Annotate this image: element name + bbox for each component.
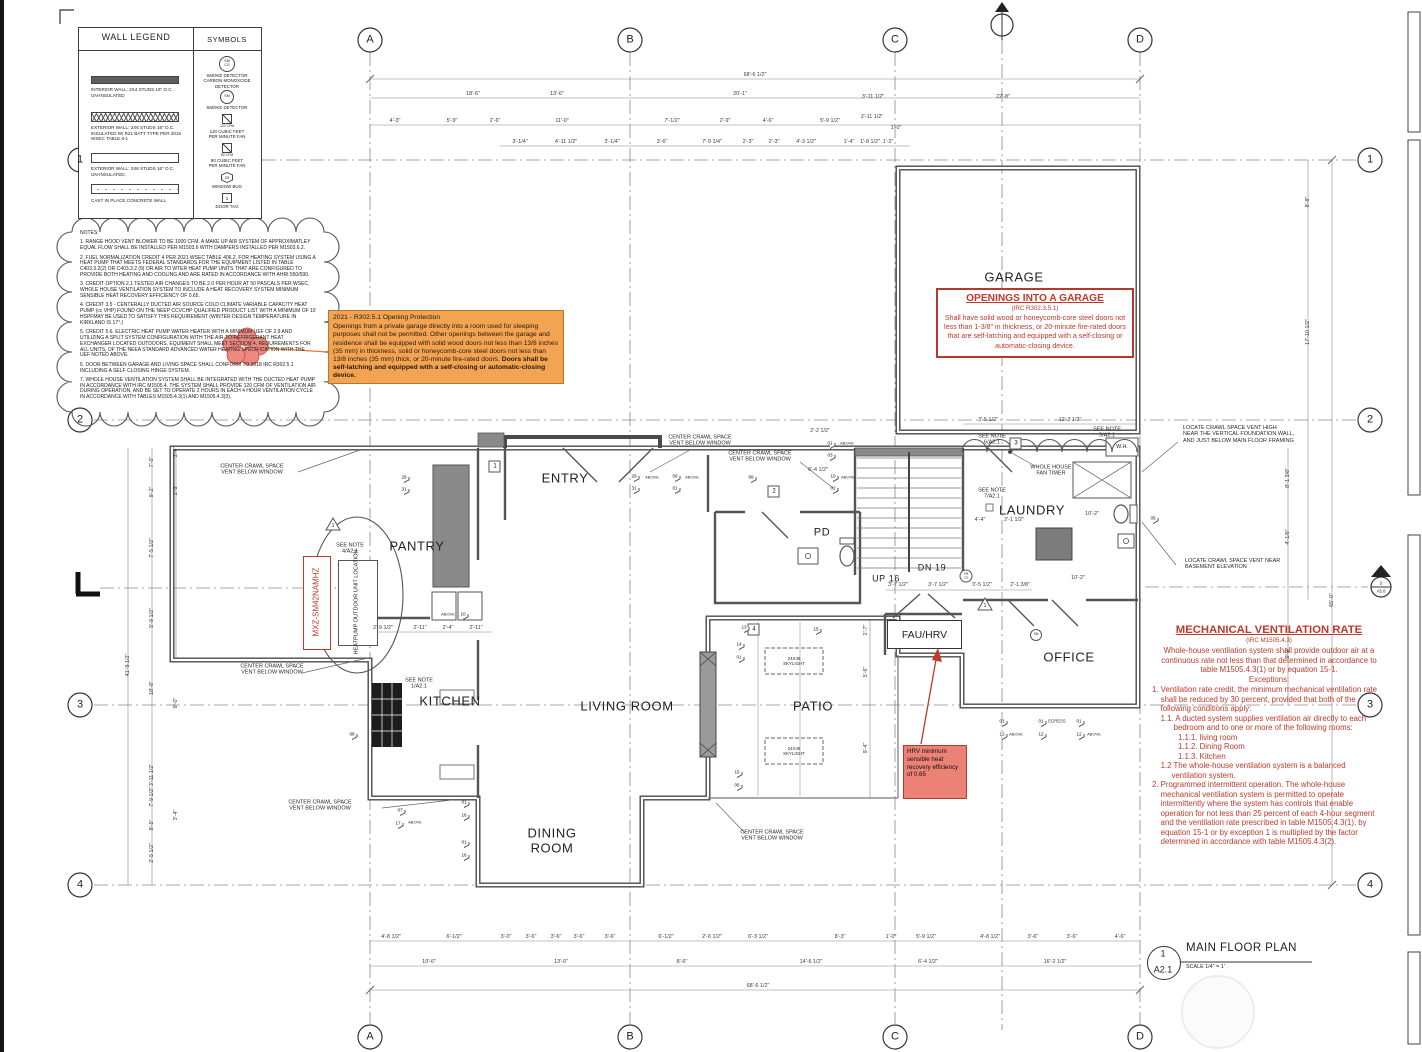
heatpump-unit-label: HEATPUMP OUTDOOR UNIT LOCATION (354, 550, 361, 655)
room-label-office: OFFICE (1043, 649, 1094, 664)
sheet-number: A2.1 (1154, 965, 1173, 976)
window-bug: 17 (395, 820, 400, 825)
note-4: 4. CREDIT 3.5 - CENTERALLY DUCTED AIR SO… (80, 303, 316, 326)
crawl-vent-note-4: CENTER CRAWL SPACE VENT BELOW WINDOW (240, 664, 303, 677)
door-tag-4: 4 (752, 626, 755, 633)
dim: 2'-2 1/2" (810, 428, 830, 434)
dim: 68'-6 1/2" (747, 983, 770, 989)
dim: 3'-11 1/2" (149, 764, 155, 786)
window-bug: 89 (748, 474, 753, 479)
garage-openings-note: OPENINGS INTO A GARAGE (IRC R302.3.5.1) … (936, 288, 1134, 358)
red-markups (223, 328, 942, 744)
window-bug-item: 23 WINDOW BUG (195, 172, 259, 189)
see-note-6: SEE NOTE 6/A2.1 (978, 434, 1006, 447)
skylight-note-2: 24X48 SKYLIGHT (783, 746, 805, 756)
room-label-fau-hrv: FAU/HRV (887, 620, 962, 649)
dim: 11'-0" (555, 118, 568, 124)
grid-row-1-right: 1 (1367, 154, 1373, 167)
section-cut-mark (76, 572, 100, 594)
dim: 9'-2" (149, 487, 155, 498)
dim: 3'-7 1/2" (888, 582, 908, 588)
dim: 1'-8 1/2" (860, 139, 880, 145)
window-bug: 29 (401, 474, 406, 479)
dim: 8'-3" (835, 934, 846, 940)
dim: 3'-6" (657, 139, 668, 145)
above-label-7: ABOVE (1009, 733, 1023, 738)
grid-col-d-bottom: D (1136, 1031, 1144, 1044)
window-bug: 06 (734, 782, 739, 787)
window-bug: 02 (830, 485, 835, 490)
hrv-efficiency-note: HRV minimum sensible heat recovery effic… (903, 745, 967, 799)
dim: 2'-1 3/8" (1010, 582, 1030, 588)
dim: 16'-2 1/2" (1044, 959, 1067, 965)
dim: 41'-9 1/2" (125, 654, 131, 677)
dim: 2'-6 1/2" (702, 934, 722, 940)
interior-walls (370, 448, 1138, 798)
above-label-8: ABOVE (1087, 733, 1101, 738)
smoke-detector-mark: SM (1034, 633, 1039, 637)
dim: 6'-4 1/2" (808, 467, 828, 473)
dim: 6'-4 1/2" (918, 959, 938, 965)
grid-row-1-left: 1 (77, 154, 83, 167)
window-bug: 31 (631, 485, 636, 490)
window-bug: 05 (1150, 515, 1155, 520)
grid-col-a-bottom: A (366, 1031, 373, 1044)
north-marker-icon (991, 2, 1013, 40)
above-label-2: ABOVE (685, 476, 699, 481)
dim: 3'-6" (1028, 934, 1039, 940)
door-tag-3: 3 (1014, 440, 1017, 447)
dim: 1'-2" (883, 139, 894, 145)
wall-legend-panel: WALL LEGEND SYMBOLS INTERIOR WALL: 2X4 S… (78, 27, 262, 219)
window-bug: 01 (827, 440, 832, 445)
window-bug: 14 (736, 641, 741, 646)
fan-120-icon (222, 114, 232, 124)
dim: 2'-1 1/2" (1004, 517, 1024, 523)
dim: 2'-11 1/2" (861, 114, 883, 120)
symbols-title: SYMBOLS (193, 35, 261, 44)
wall-legend-title: WALL LEGEND (79, 32, 193, 42)
dim: 9'-0" (173, 698, 179, 709)
window-bug: 12 (999, 731, 1004, 736)
smoke-detector-item: SM SMOKE DETECTOR (195, 90, 259, 110)
dim: 3'-0" (501, 934, 512, 940)
crawl-vent-basement-note: LOCATE CRAWL SPACE VENT NEAR BASEMENT EL… (1185, 558, 1280, 571)
window-bug: 01 (999, 718, 1004, 723)
dim: 2'-11" (469, 625, 482, 631)
fan-80-caption: 80 CFM (195, 153, 259, 157)
dim: 3'-1/4" (512, 139, 527, 145)
room-label-laundry: LAUNDRY (999, 502, 1065, 517)
window-bug: 31 (401, 486, 406, 491)
grid-col-d-top: D (1136, 34, 1144, 47)
window-bug: 12 (1076, 731, 1081, 736)
above-label-5: ABOVE (441, 613, 455, 618)
fan-80-item: 80 CFM 80 CUBIC FEET PER MINUTE FAN (195, 143, 259, 169)
note-2: 2. FUEL NORMALIZATION CREDIT 4 PER 2021 … (80, 256, 316, 279)
dim: 9'-4" (863, 743, 869, 754)
stairs (855, 448, 963, 572)
window-bug: 15 (813, 626, 818, 631)
window-bug: 01 (672, 485, 677, 490)
dim: 3'-4" (173, 810, 179, 821)
dim: 5'-6" (863, 667, 869, 678)
crawl-vent-note-3: CENTER CRAWL SPACE VENT BELOW WINDOW (728, 451, 791, 464)
dim: 4'-6" (1115, 934, 1126, 940)
dim: 4'-4" (975, 517, 986, 523)
dim: 2'-4" (443, 625, 454, 631)
window-bug-icon: 23 (221, 172, 233, 183)
dim: 12'-3 1/2" (1059, 417, 1082, 423)
smoke-co-detector-label: SMOKE DETECTOR CARBON MONOXCIDE DETECTOR (195, 73, 259, 89)
door-tag-label: DOOR TAG (195, 204, 259, 209)
concrete-wall-sample (91, 184, 179, 194)
drawing-scale: SCALE 1/4" = 1' (1186, 964, 1225, 970)
dim: 3'-1/4" (604, 139, 619, 145)
detail-number: 1 (1160, 949, 1165, 960)
room-label-garage: GARAGE (984, 269, 1043, 284)
fan-120-label: 120 CUBIC FEET PER MINUTE FAN (195, 129, 259, 140)
dim: 3'-6" (574, 934, 585, 940)
grid-lines (94, 40, 1368, 1030)
note-1: 1. RANGE HOOD VENT BLOWER TO BE 1000 CFM… (80, 240, 316, 252)
dim: 6'-3 1/2" (748, 934, 768, 940)
dim: 8'-8" (1305, 197, 1311, 208)
above-label-4: ABOVE (841, 476, 855, 481)
window-bug: 07 (397, 807, 402, 812)
dim: 10'-2" (1085, 511, 1099, 517)
dim: 3'-5 1/2" (978, 417, 998, 423)
dim: 13'-0" (554, 959, 568, 965)
grid-row-3-left: 3 (77, 699, 83, 712)
dim: 2'-5" (173, 485, 179, 496)
window-bug: 13 (741, 624, 746, 629)
dim: 2'-11" (413, 625, 426, 631)
door-tag-2: 2 (772, 488, 775, 495)
dim: 2'-7" (863, 625, 869, 636)
dim: 9'-2" (1285, 648, 1291, 659)
fan-timer-note: WHOLE HOUSE FAN TIMER (1030, 465, 1071, 478)
dim: 5'-9 1/2" (916, 934, 936, 940)
room-label-powder: PD (814, 527, 830, 540)
grid-col-b-top: B (626, 34, 633, 47)
window-bug: 01 (736, 654, 741, 659)
dim: 8'-6" (677, 959, 688, 965)
dim: 3'-5 1/2" (972, 582, 992, 588)
fan-120-caption: 120 CFM (195, 124, 259, 128)
triangle-tag-1: 1 (332, 524, 335, 530)
crawl-vent-high-note: LOCATE CRAWL SPACE VENT HIGH NEAR THE VE… (1183, 425, 1294, 444)
room-label-dining-room: DINING ROOM (527, 826, 576, 857)
dim: 65'-0" (1329, 593, 1335, 607)
dim: 1'-0" (891, 125, 902, 131)
dim: 6'-1/2" (658, 934, 673, 940)
dim: 4'-3 1/2" (796, 139, 816, 145)
crawl-vent-note-2: CENTER CRAWL SPACE VENT BELOW WINDOW (668, 435, 731, 448)
egress-label: EGRESS (1048, 720, 1065, 725)
dim: 5'-9" (447, 118, 458, 124)
dim: 3'-6" (551, 934, 562, 940)
mech-vent-body: 1. Ventilation rate credit. the minimum … (1152, 685, 1386, 847)
interior-wall-sample (91, 76, 179, 84)
dim: 4'-6" (763, 118, 774, 124)
dim: 5'-9 1/2" (149, 608, 155, 628)
section-marker-number: 2 (1380, 580, 1383, 585)
dim: 3'-6" (605, 934, 616, 940)
opening-protection-title: 2021 - R302.5.1 Opening Protection (333, 314, 559, 322)
floor-plan-sheet: WALL LEGEND SYMBOLS INTERIOR WALL: 2X4 S… (0, 0, 1422, 1052)
see-note-5: SEE NOTE 5/A2.1 (1093, 427, 1121, 440)
dim: 5'-9 1/2" (820, 118, 840, 124)
stair-down-label: DN 19 (918, 563, 947, 574)
dim: 2'-5 1/2" (149, 843, 155, 863)
room-label-entry: ENTRY (542, 470, 589, 485)
grid-col-b-bottom: B (626, 1031, 633, 1044)
exterior-wall-sample (91, 153, 179, 163)
above-label-1: ABOVE (645, 476, 659, 481)
window-bug: 03 (827, 452, 832, 457)
smoke-detector-icon: SM (220, 90, 234, 104)
legend-rule (79, 50, 193, 51)
garage-openings-title: OPENINGS INTO A GARAGE (942, 293, 1128, 304)
window-bug: 08 (349, 731, 354, 736)
grid-col-a-top: A (366, 34, 373, 47)
window-bug: 10 (460, 611, 465, 616)
dim: 7'-9 1/2" (149, 787, 155, 807)
dim: 3'-4" (173, 447, 179, 458)
window-bug: 01 (461, 799, 466, 804)
dim: 7'-9 1/4" (702, 139, 722, 145)
see-note-7: SEE NOTE 7/A2.1 (978, 488, 1006, 501)
grid-col-c-top: C (891, 34, 899, 47)
note-6: 6. DOOR BETWEEN GARAGE AND LIVING SPACE … (80, 363, 316, 375)
grid-row-4-left: 4 (77, 879, 83, 892)
crawl-vent-note-1: CENTER CRAWL SPACE VENT BELOW WINDOW (220, 464, 283, 477)
drawing-title: MAIN FLOOR PLAN (1186, 942, 1297, 956)
interior-wall-label: INTERIOR WALL: 2X4 STUDS 16" O.C. UN-INS… (91, 87, 191, 98)
dim: 7'-5 1/2" (149, 538, 155, 558)
crawl-vent-note-6: CENTER CRAWL SPACE VENT BELOW WINDOW (740, 830, 803, 843)
grid-bubbles (68, 28, 1382, 1049)
garage-openings-code: (IRC R302.3.5.1) (942, 305, 1128, 312)
dim: 4'-8 1/2" (381, 934, 401, 940)
dim: 2'-9 1/2" (373, 625, 393, 631)
note-7: 7. WHOLE HOUSE VENTILATION SYSTEM SHALL … (80, 378, 316, 401)
garage-openings-body: Shall have solid wood or honeycomb-core … (942, 314, 1128, 351)
dim: 1'-0" (886, 934, 897, 940)
window-bug: 15 (734, 769, 739, 774)
dim: 14'-6 1/2" (800, 959, 823, 965)
room-label-patio: PATIO (793, 698, 833, 713)
dimension-lines (128, 75, 1336, 994)
notes-heading: NOTES: (80, 231, 316, 237)
mechanical-ventilation-note: MECHANICAL VENTILATION RATE (IRC M1505.4… (1152, 624, 1386, 847)
smoke-co-mark: SM CO (964, 572, 969, 579)
window-bug: 12 (1038, 731, 1043, 736)
dim: 17'-10 1/2" (1305, 319, 1311, 345)
room-label-living-room: LIVING ROOM (580, 698, 673, 713)
room-label-kitchen: KITCHEN (419, 693, 480, 708)
general-notes: NOTES: 1. RANGE HOOD VENT BLOWER TO BE 1… (80, 231, 316, 405)
grid-row-3-right: 3 (1367, 699, 1373, 712)
door-tag-1: 1 (493, 463, 496, 470)
dim: 8'-5" (149, 820, 155, 831)
window-bug: 01 (1076, 718, 1081, 723)
dim: 4'-1/8" (1285, 529, 1291, 544)
mech-vent-title: MECHANICAL VENTILATION RATE (1152, 624, 1386, 636)
symbols-rule (193, 50, 261, 51)
insulated-wall-sample (91, 112, 179, 122)
window-bug: 16 (461, 852, 466, 857)
room-label-pantry: PANTRY (389, 538, 444, 553)
dim: 4'-3" (390, 118, 401, 124)
insulated-wall-label: EXTERIOR WALL: 2X6 STUDS 16" O.C. INSULA… (91, 125, 191, 142)
triangle-tag-2: 1 (984, 604, 987, 610)
see-note-1: SEE NOTE 1/A2.1 (405, 678, 433, 691)
dim: 20'-1" (733, 91, 747, 97)
dim: 3'-11 1/2" (862, 94, 884, 100)
dim: 22'-8" (996, 94, 1010, 100)
dim: 7'-0" (149, 457, 155, 468)
section-marker-sheet: A5.0 (1377, 590, 1386, 595)
window-bug: 29 (631, 473, 636, 478)
grid-row-2-right: 2 (1367, 414, 1373, 427)
smoke-detector-label: SMOKE DETECTOR (195, 105, 259, 110)
dim: 68'-6 1/2" (744, 72, 767, 78)
dim: 18'-6" (466, 91, 480, 97)
see-note-4: SEE NOTE 4/A2.1 (336, 543, 364, 556)
window-bug: 10 (830, 473, 835, 478)
grid-row-2-left: 2 (77, 414, 83, 427)
smoke-co-detector-icon: SM CO (219, 56, 235, 72)
dim: 4'-8 1/2" (980, 934, 1000, 940)
dim: 10'-6" (422, 959, 436, 965)
fan-80-icon (222, 143, 232, 153)
dim: 3'-7 1/2" (928, 582, 948, 588)
window-bug-label: WINDOW BUG (195, 184, 259, 189)
concrete-wall-label: CAST IN PLACE CONCRETE WALL (91, 198, 191, 204)
dim: 10'-2" (1071, 575, 1085, 581)
dim: 3'-6" (526, 934, 537, 940)
dim: 3'-6" (1067, 934, 1078, 940)
dim: 6'-1/2" (446, 934, 461, 940)
water-heater-label: W.H. (1116, 444, 1128, 450)
dim: 1'-4" (844, 139, 855, 145)
door-tag-icon: 1 (222, 193, 232, 203)
mech-vent-code: (IRC M1505.4.3) (1152, 637, 1386, 644)
fan-80-label: 80 CUBIC FEET PER MINUTE FAN (195, 158, 259, 169)
heatpump-model-label: MXZ-SM42NAMHZ (311, 568, 320, 637)
crawl-vent-note-5: CENTER CRAWL SPACE VENT BELOW WINDOW (288, 800, 351, 813)
grid-col-c-bottom: C (891, 1031, 899, 1044)
grid-row-4-right: 4 (1367, 879, 1373, 892)
dim: 4'-11 1/2" (555, 139, 577, 145)
fan-120-item: 120 CFM 120 CUBIC FEET PER MINUTE FAN (195, 114, 259, 140)
dim: 2'-9" (720, 118, 731, 124)
door-tag-item: 1 DOOR TAG (195, 193, 259, 209)
smoke-co-detector-item: SM CO SMOKE DETECTOR CARBON MONOXCIDE DE… (195, 56, 259, 89)
opening-protection-note: 2021 - R302.5.1 Opening Protection Openi… (328, 310, 564, 384)
above-label-3: ABOVE (840, 442, 854, 447)
note-5: 5. CREDIT 5.6. ELECTRIC HEAT PUMP WATER … (80, 330, 316, 359)
dim: 2'-3" (743, 139, 754, 145)
dim: 8'-1 3/8" (1285, 468, 1291, 488)
window-bug: 09 (672, 473, 677, 478)
dim: 7'-1/2" (664, 118, 679, 124)
dim: 2'-3" (769, 139, 780, 145)
window-bug: 01 (1038, 718, 1043, 723)
legend-divider (193, 28, 194, 218)
exterior-wall-label: EXTERIOR WALL: 2X6 STUDS 16" O.C. UN-INS… (91, 166, 191, 177)
above-label-6: ABOVE (408, 821, 422, 826)
skylight-note-1: 24X48 SKYLIGHT (783, 656, 805, 666)
note-3: 3. CREDIT OPTION 2.1 TESTED AIR CHANGES … (80, 282, 316, 299)
dim: 13'-6" (550, 91, 564, 97)
window-bug: 16 (461, 812, 466, 817)
window-bug: 01 (461, 839, 466, 844)
mech-vent-intro: Whole-house ventilation system shall pro… (1152, 646, 1386, 684)
dim: 2'-6" (490, 118, 501, 124)
dim: 18'-8" (149, 681, 155, 695)
